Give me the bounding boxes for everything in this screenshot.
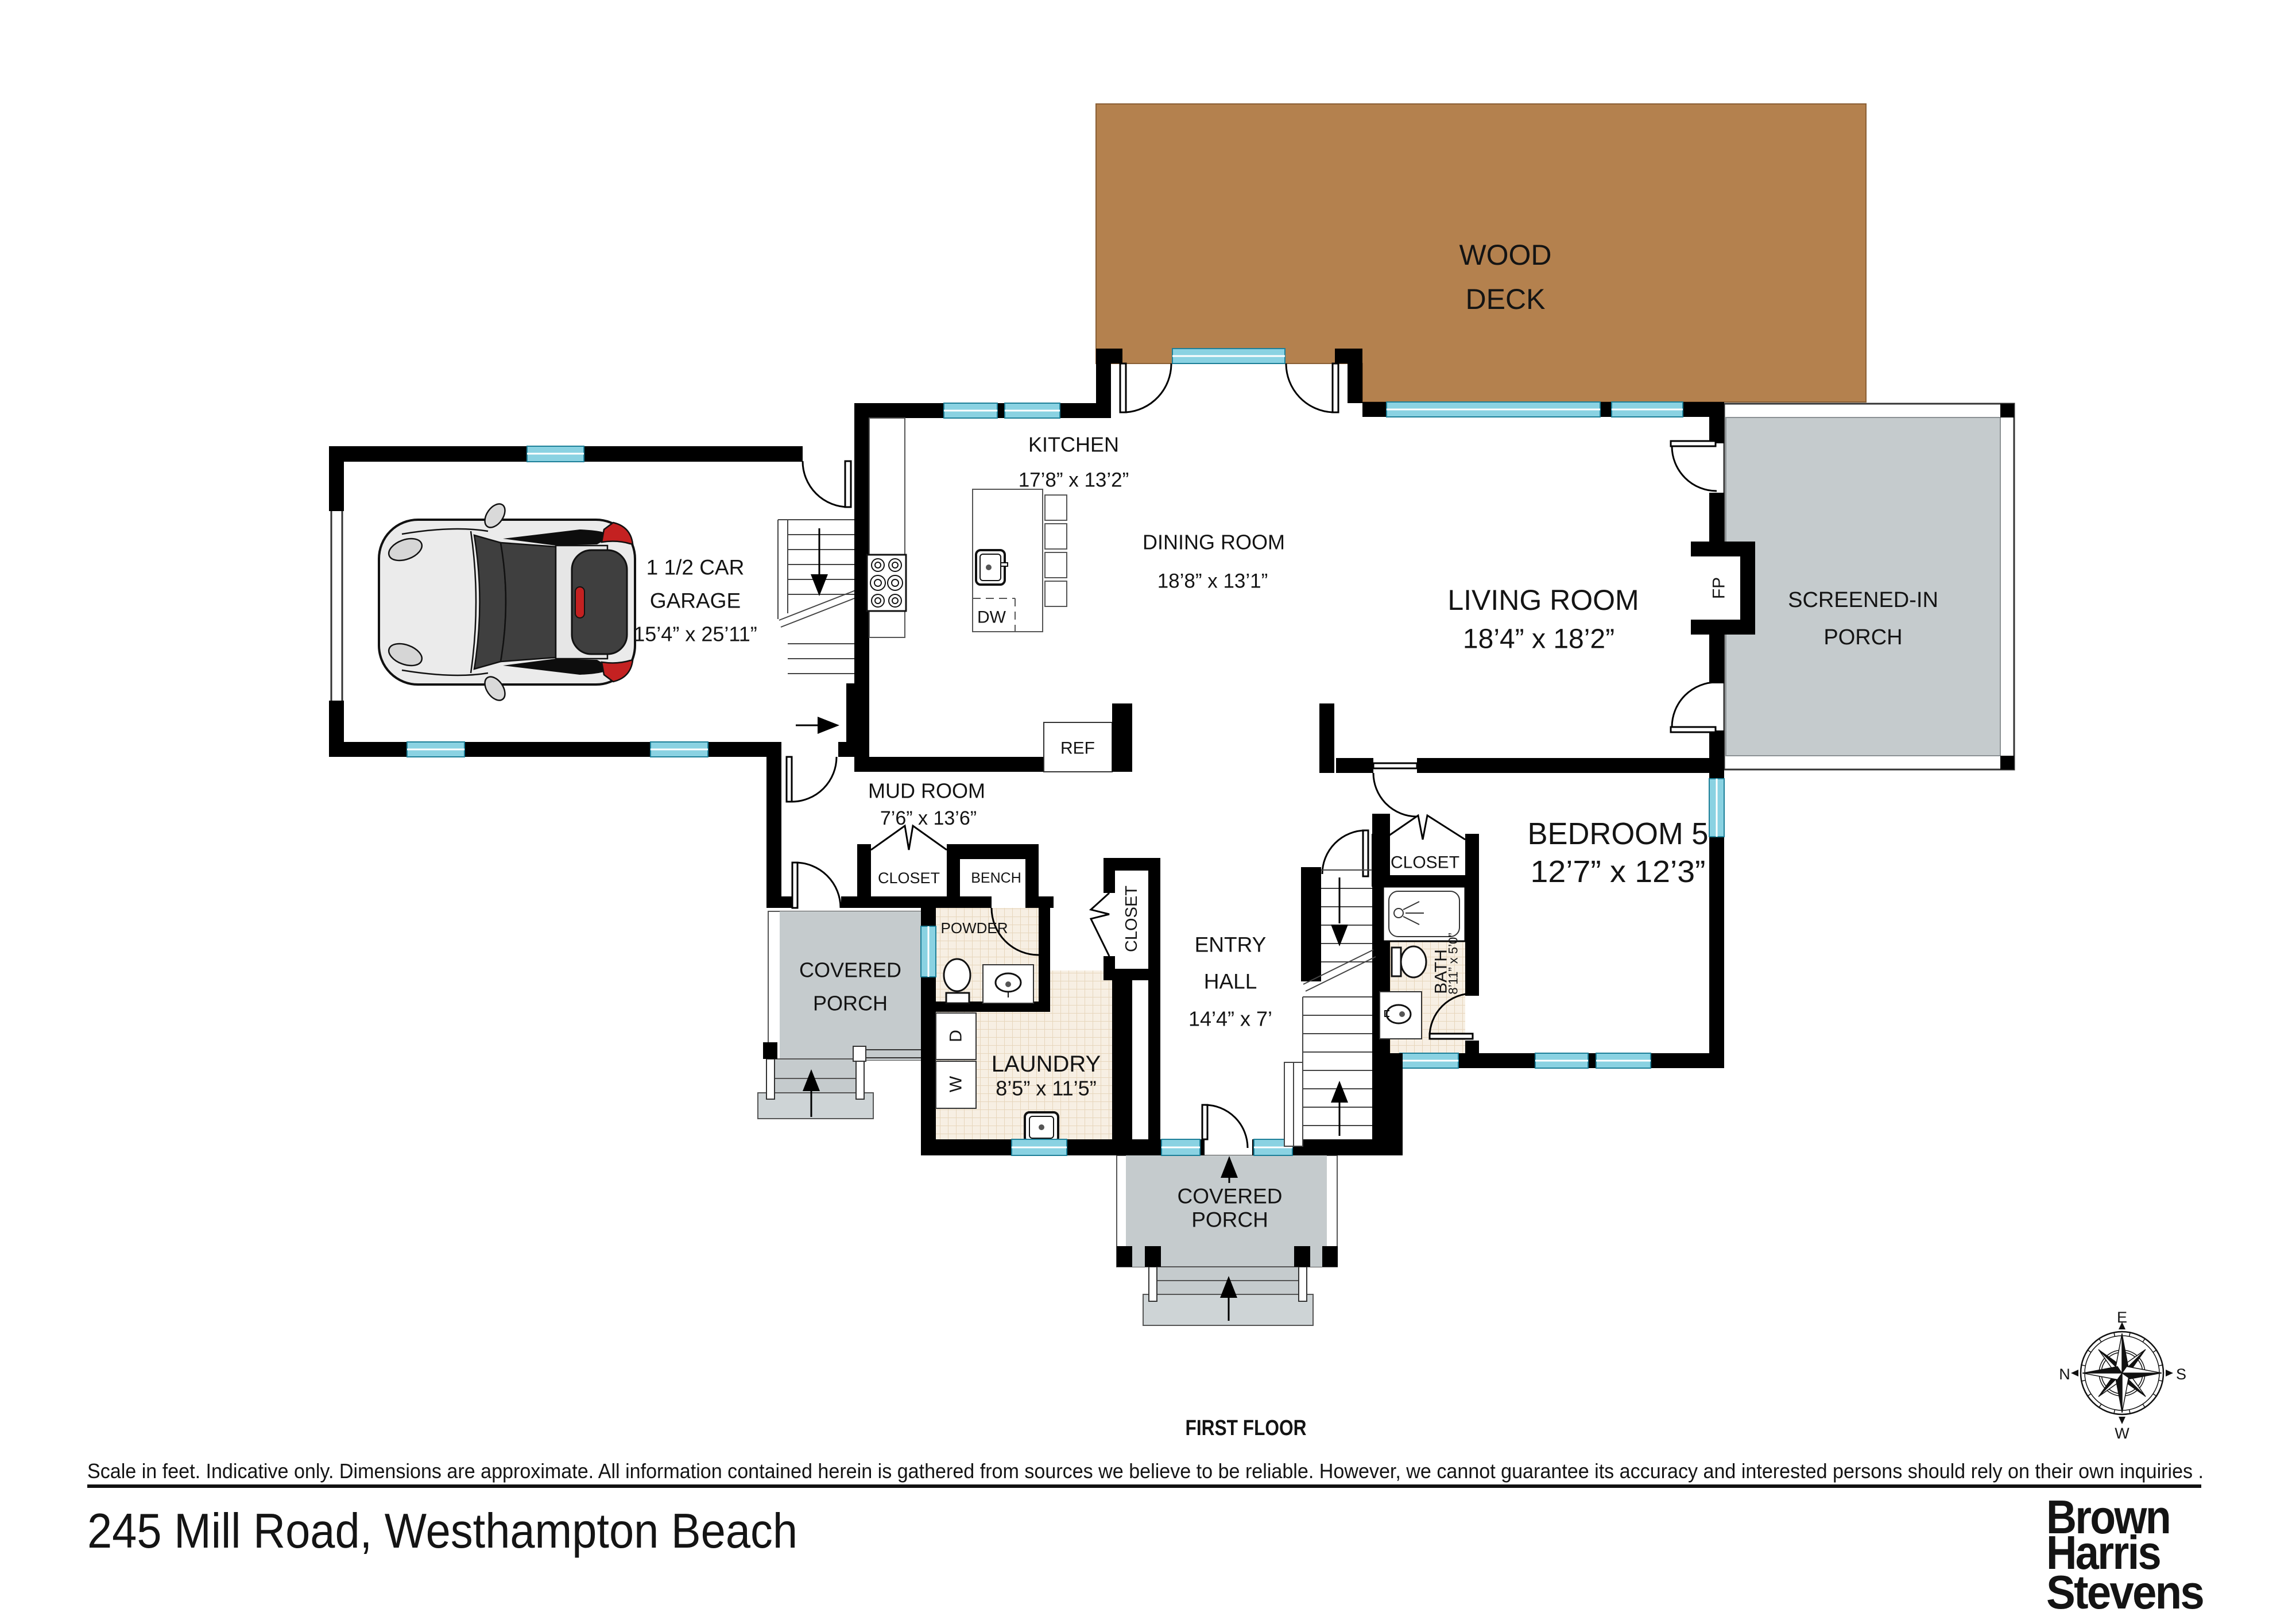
svg-text:CLOSET: CLOSET [878, 869, 940, 887]
svg-text:S: S [2176, 1366, 2186, 1383]
svg-text:GARAGE: GARAGE [650, 589, 741, 613]
svg-text:PORCH: PORCH [1191, 1208, 1268, 1232]
svg-text:BENCH: BENCH [971, 870, 1021, 886]
svg-text:SCREENED-IN: SCREENED-IN [1788, 588, 1938, 612]
svg-text:CLOSET: CLOSET [1391, 853, 1459, 872]
svg-text:REF: REF [1060, 739, 1095, 758]
svg-text:DINING ROOM: DINING ROOM [1143, 531, 1285, 554]
svg-text:18’8” x 13’1”: 18’8” x 13’1” [1157, 570, 1268, 593]
svg-text:DW: DW [977, 608, 1006, 627]
svg-text:POWDER: POWDER [941, 919, 1008, 937]
svg-text:PORCH: PORCH [1823, 625, 1902, 649]
svg-text:LIVING ROOM: LIVING ROOM [1447, 584, 1639, 616]
svg-text:17’8” x 13’2”: 17’8” x 13’2” [1019, 469, 1129, 492]
svg-text:8’11” x 5’0”: 8’11” x 5’0” [1446, 933, 1461, 994]
svg-text:8’5” x 11’5”: 8’5” x 11’5” [996, 1077, 1096, 1100]
svg-text:FIRST FLOOR: FIRST FLOOR [1186, 1416, 1307, 1440]
svg-text:Scale in feet. Indicative only: Scale in feet. Indicative only. Dimensio… [87, 1459, 2204, 1483]
svg-text:18’4” x 18’2”: 18’4” x 18’2” [1463, 624, 1614, 655]
svg-text:15’4” x 25’11”: 15’4” x 25’11” [633, 622, 757, 646]
svg-text:D: D [947, 1030, 966, 1042]
svg-text:7’6” x 13’6”: 7’6” x 13’6” [880, 807, 977, 829]
svg-text:W: W [947, 1076, 966, 1092]
svg-text:W: W [2115, 1425, 2129, 1442]
svg-text:N: N [2059, 1366, 2070, 1383]
svg-text:1 1/2 CAR: 1 1/2 CAR [646, 556, 745, 579]
svg-text:ENTRY: ENTRY [1195, 933, 1267, 957]
svg-text:KITCHEN: KITCHEN [1028, 433, 1119, 457]
svg-text:CLOSET: CLOSET [1122, 886, 1141, 952]
svg-text:Stevens: Stevens [2046, 1565, 2203, 1619]
svg-text:12’7” x 12’3”: 12’7” x 12’3” [1531, 854, 1706, 889]
svg-text:PORCH: PORCH [813, 992, 888, 1015]
svg-text:FP: FP [1710, 577, 1729, 599]
svg-text:245 Mill Road, Westhampton Bea: 245 Mill Road, Westhampton Beach [87, 1504, 797, 1559]
svg-text:14’4” x 7’: 14’4” x 7’ [1188, 1007, 1272, 1031]
svg-text:BEDROOM 5: BEDROOM 5 [1528, 817, 1709, 851]
svg-text:WOOD: WOOD [1459, 239, 1551, 271]
svg-text:DECK: DECK [1466, 283, 1546, 315]
svg-text:LAUNDRY: LAUNDRY [992, 1051, 1101, 1077]
svg-text:MUD ROOM: MUD ROOM [868, 779, 985, 803]
svg-text:HALL: HALL [1204, 970, 1257, 993]
svg-text:COVERED: COVERED [799, 958, 901, 982]
svg-text:E: E [2117, 1309, 2127, 1326]
svg-text:COVERED: COVERED [1178, 1185, 1283, 1208]
